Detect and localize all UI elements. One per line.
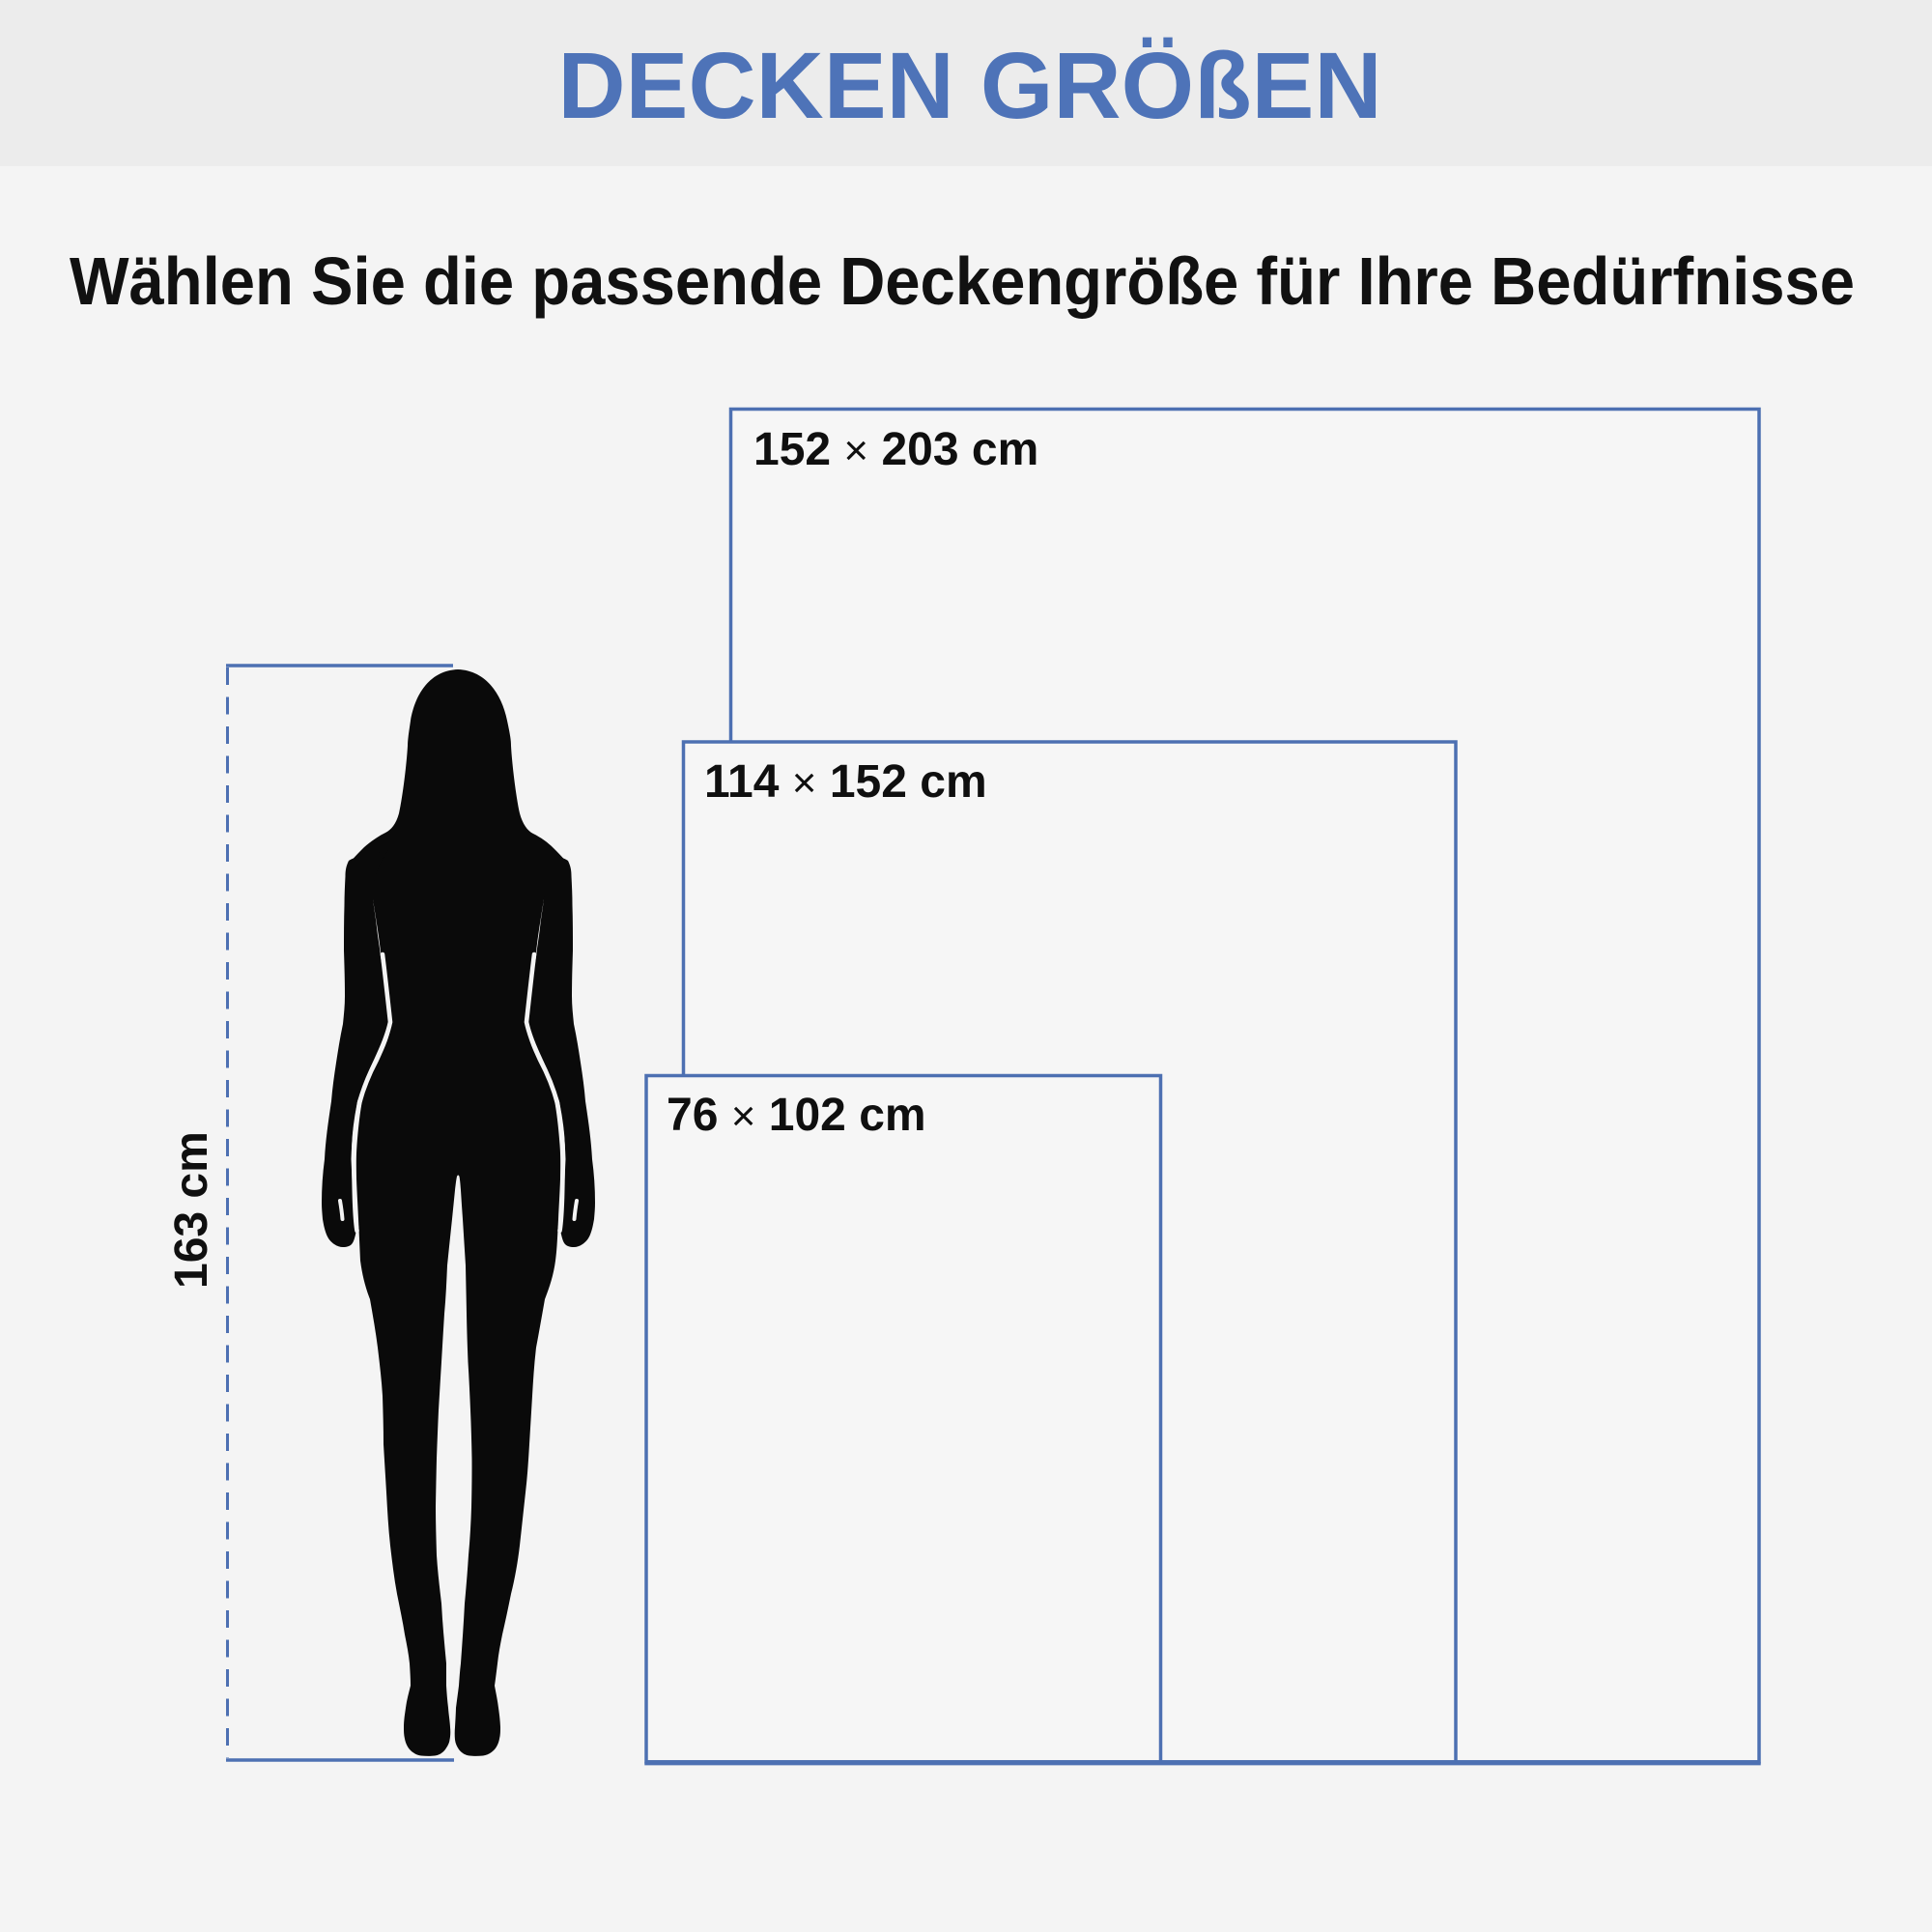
svg-text:76 × 102 cm: 76 × 102 cm [667,1090,926,1141]
svg-text:Wählen Sie die passende Decken: Wählen Sie die passende Deckengröße für … [70,243,1855,319]
svg-text:114 × 152 cm: 114 × 152 cm [704,756,987,808]
svg-text:DECKEN GRÖßEN: DECKEN GRÖßEN [558,33,1382,138]
svg-text:152 × 203 cm: 152 × 203 cm [753,424,1038,475]
svg-text:163 cm: 163 cm [166,1131,217,1289]
